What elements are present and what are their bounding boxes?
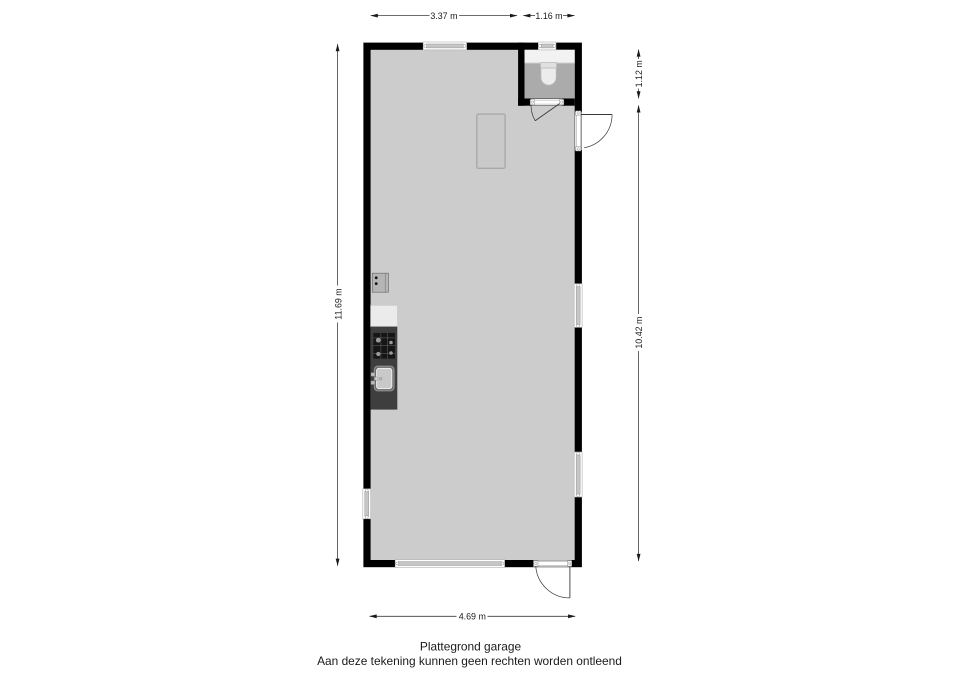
svg-text:Plattegrond garage: Plattegrond garage [420,639,522,653]
svg-text:1.16 m: 1.16 m [535,11,562,21]
svg-text:4.69 m: 4.69 m [459,612,486,622]
svg-text:1.12 m: 1.12 m [634,60,644,87]
svg-text:Aan deze tekening kunnen geen: Aan deze tekening kunnen geen rechten wo… [317,654,622,668]
svg-text:10.42 m: 10.42 m [634,317,644,349]
svg-text:3.37 m: 3.37 m [430,11,457,21]
svg-text:11.69 m: 11.69 m [334,288,344,319]
